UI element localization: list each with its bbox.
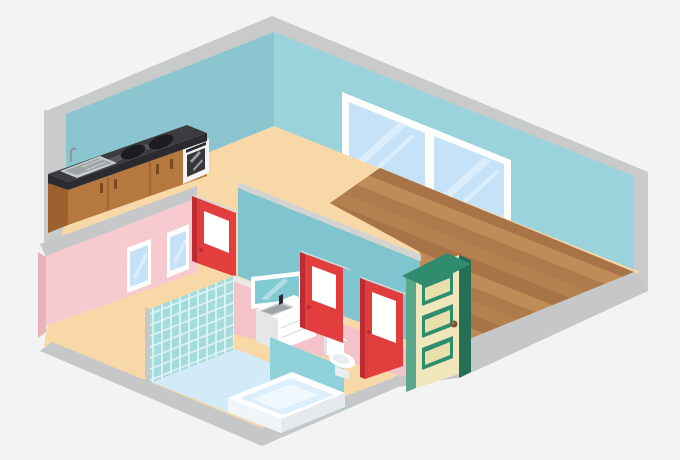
apartment-isometric-illustration [0, 0, 680, 460]
door-knob [367, 330, 371, 334]
cabinet-handle [114, 179, 117, 189]
entry-door-knob [451, 321, 458, 328]
door-side-edge [300, 252, 305, 329]
tile-wall-edge [145, 307, 150, 386]
green-entry-door [402, 253, 471, 392]
cabinet-handle [100, 183, 103, 193]
door-side-edge [360, 278, 365, 379]
door-knob [199, 248, 203, 252]
cabinet-handle [170, 159, 173, 169]
small-window-glass [170, 231, 186, 271]
entry-door-knob-highlight [452, 322, 455, 325]
door-side-edge [192, 196, 197, 263]
apartment-illustration-canvas [0, 0, 680, 460]
entry-door-jamb-right [459, 255, 471, 378]
cabinet-side [48, 182, 68, 233]
toilet-tank-side [324, 334, 327, 355]
entry-door-jamb-left [406, 273, 416, 392]
pink-wall-cut-side [38, 252, 46, 338]
door-knob [307, 305, 311, 309]
cabinet-handle [156, 164, 159, 174]
